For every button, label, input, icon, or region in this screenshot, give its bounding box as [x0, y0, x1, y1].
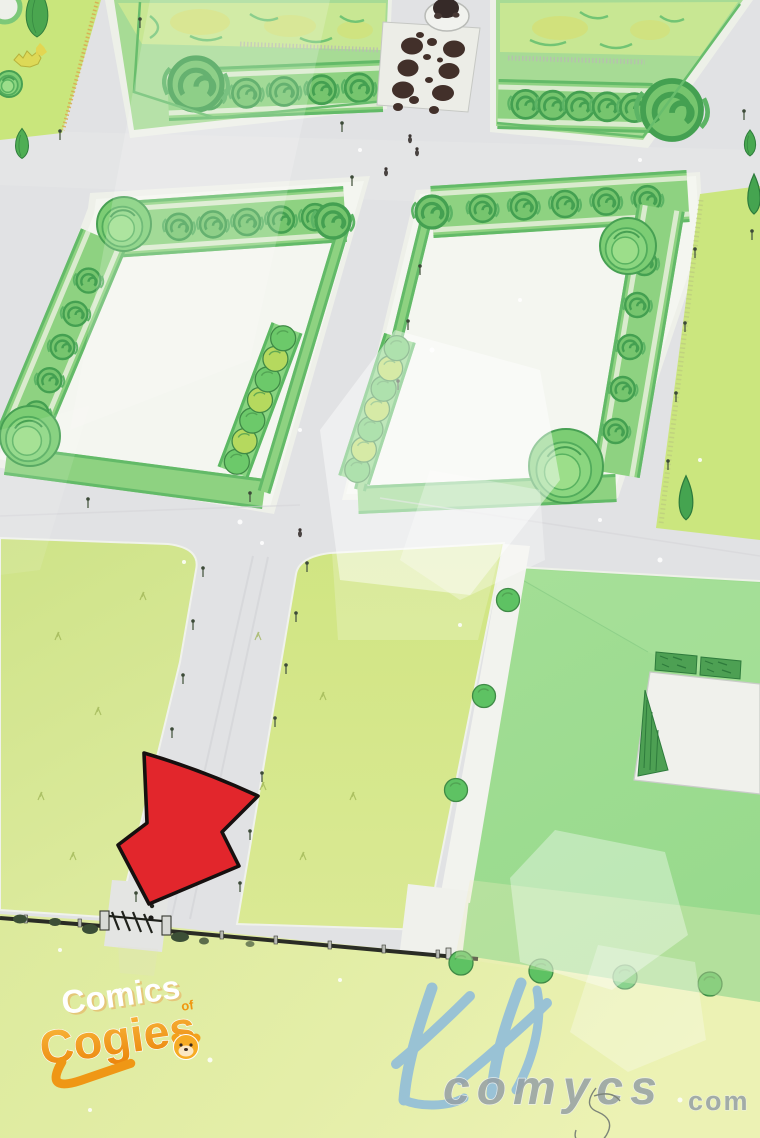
- svg-text:com: com: [688, 1086, 750, 1116]
- svg-text:comycs: comycs: [443, 1062, 664, 1115]
